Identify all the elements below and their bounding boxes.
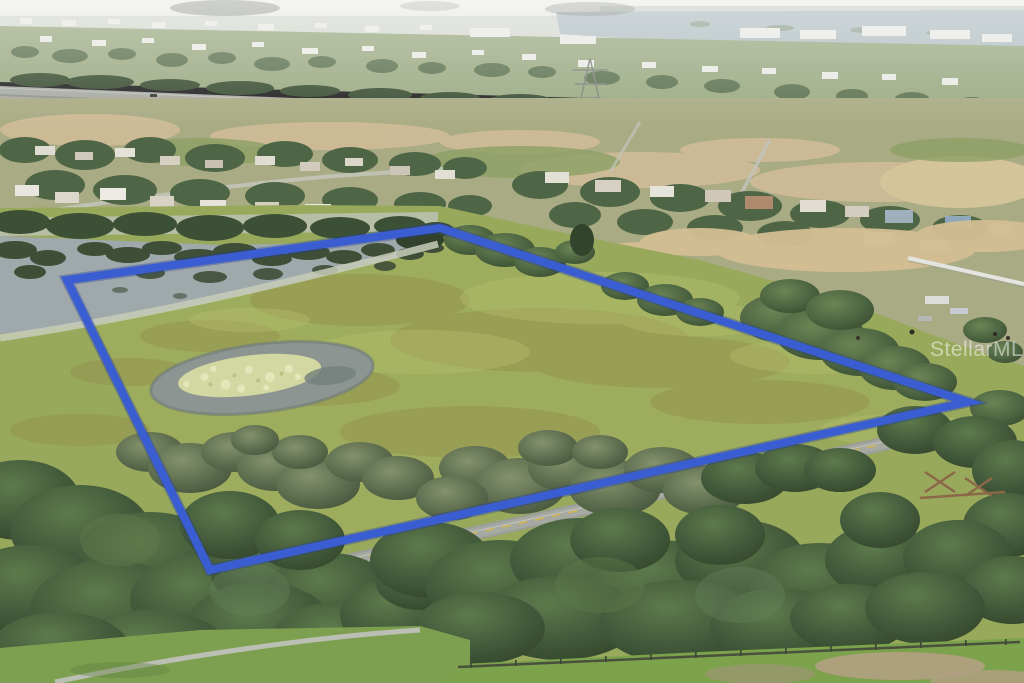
aerial-photo: StellarMLS [0,0,1024,683]
haze-overlay [0,0,1024,130]
watermark: StellarMLS [930,338,1024,361]
aerial-photo-canvas: StellarMLS [0,0,1024,683]
animal-dot [910,330,915,335]
